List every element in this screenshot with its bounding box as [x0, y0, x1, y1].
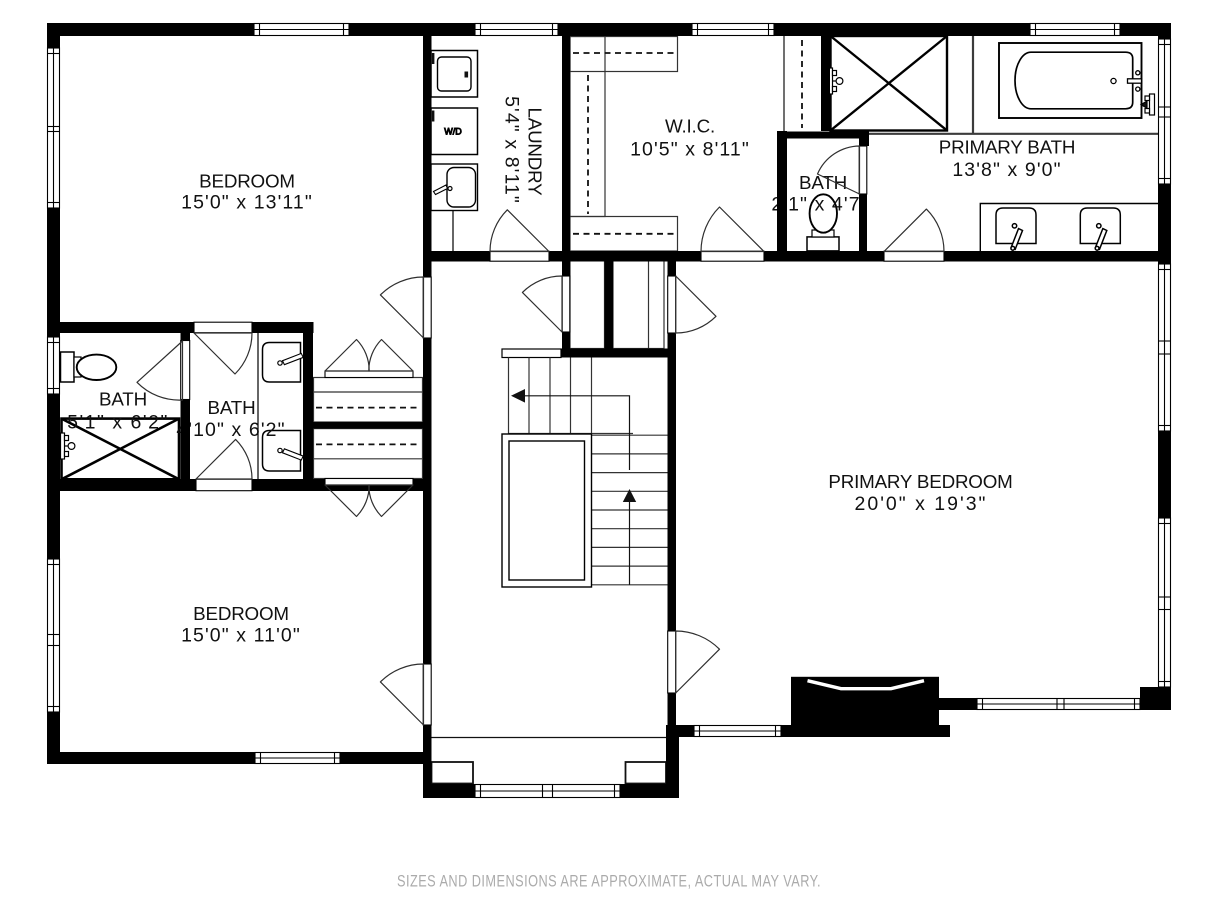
svg-text:SIZES AND DIMENSIONS ARE APPRO: SIZES AND DIMENSIONS ARE APPROXIMATE, AC…	[397, 873, 821, 891]
svg-text:LAUNDRY: LAUNDRY	[525, 107, 546, 196]
svg-text:15'0" x 11'0": 15'0" x 11'0"	[181, 625, 301, 647]
svg-text:5'4" x 8'11": 5'4" x 8'11"	[501, 96, 523, 204]
svg-text:PRIMARY BEDROOM: PRIMARY BEDROOM	[828, 471, 1012, 492]
svg-text:BATH: BATH	[208, 397, 256, 418]
svg-text:BATH: BATH	[799, 172, 847, 193]
svg-text:W/D: W/D	[444, 127, 462, 137]
svg-text:10'5" x 8'11": 10'5" x 8'11"	[630, 139, 750, 161]
svg-text:13'8" x 9'0": 13'8" x 9'0"	[952, 159, 1061, 181]
svg-text:20'0" x 19'3": 20'0" x 19'3"	[855, 493, 988, 515]
svg-text:BEDROOM: BEDROOM	[193, 603, 289, 624]
svg-text:PRIMARY BATH: PRIMARY BATH	[939, 137, 1075, 158]
svg-text:W.I.C.: W.I.C.	[665, 116, 715, 137]
svg-text:BATH: BATH	[99, 389, 147, 410]
svg-text:4'10" x 6'2": 4'10" x 6'2"	[176, 419, 285, 441]
svg-text:15'0" x 13'11": 15'0" x 13'11"	[181, 192, 313, 214]
svg-text:5'1" x 6'2": 5'1" x 6'2"	[67, 412, 169, 434]
svg-text:BEDROOM: BEDROOM	[199, 171, 295, 192]
